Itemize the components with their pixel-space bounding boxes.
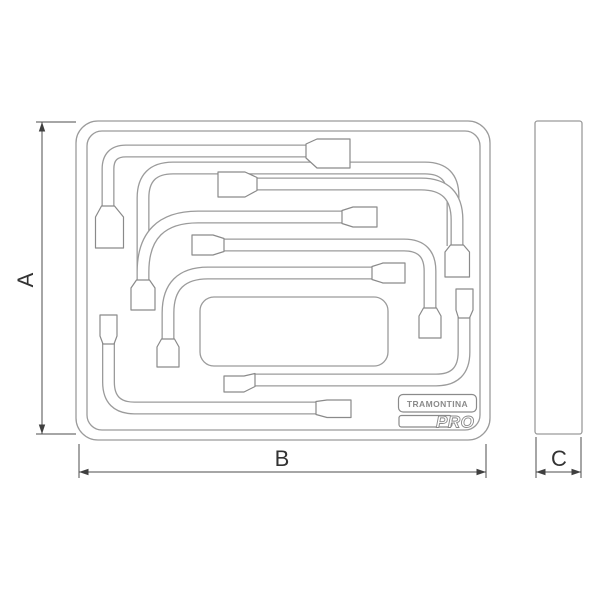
dimension-c-label: C xyxy=(551,446,567,471)
wrench-head-6 xyxy=(224,374,255,393)
dimension-a-label: A xyxy=(13,272,38,287)
technical-drawing-page: TRAMONTINA PRO A B C xyxy=(0,0,600,600)
wrench-head-3 xyxy=(342,207,377,227)
dimension-a-arrow-bottom xyxy=(39,425,45,435)
socket-end-7 xyxy=(100,315,117,344)
center-cutout xyxy=(200,297,388,366)
dimension-b-arrow-right xyxy=(477,469,487,475)
socket-end-6 xyxy=(456,289,473,318)
wrench-head-4 xyxy=(192,235,224,255)
wrench-head-5 xyxy=(372,263,405,283)
wrench-head-7 xyxy=(316,400,351,418)
dimension-c-arrow-right xyxy=(572,469,582,475)
tray-front-view: TRAMONTINA PRO xyxy=(76,121,490,440)
socket-end-5 xyxy=(157,339,179,367)
dimension-b-arrow-left xyxy=(79,469,89,475)
dimension-b-group: B xyxy=(79,444,486,478)
wrench-head-1 xyxy=(306,139,350,168)
socket-end-2 xyxy=(131,280,155,310)
dimension-a-arrow-top xyxy=(39,122,45,132)
brand-name-text: TRAMONTINA xyxy=(407,399,468,409)
side-view xyxy=(535,121,582,434)
dimension-a-group: A xyxy=(13,122,76,434)
pro-text: PRO xyxy=(436,413,474,432)
socket-end-1 xyxy=(96,206,124,248)
dimension-c-arrow-left xyxy=(536,469,546,475)
wrench-head-2 xyxy=(218,172,257,197)
technical-drawing: TRAMONTINA PRO A B C xyxy=(0,0,600,600)
side-view-outline xyxy=(535,121,582,434)
dimension-b-label: B xyxy=(275,446,290,471)
brand-logo: TRAMONTINA PRO xyxy=(399,395,477,432)
socket-end-4 xyxy=(419,308,441,338)
dimension-c-group: C xyxy=(536,437,581,478)
socket-end-3 xyxy=(445,245,470,277)
